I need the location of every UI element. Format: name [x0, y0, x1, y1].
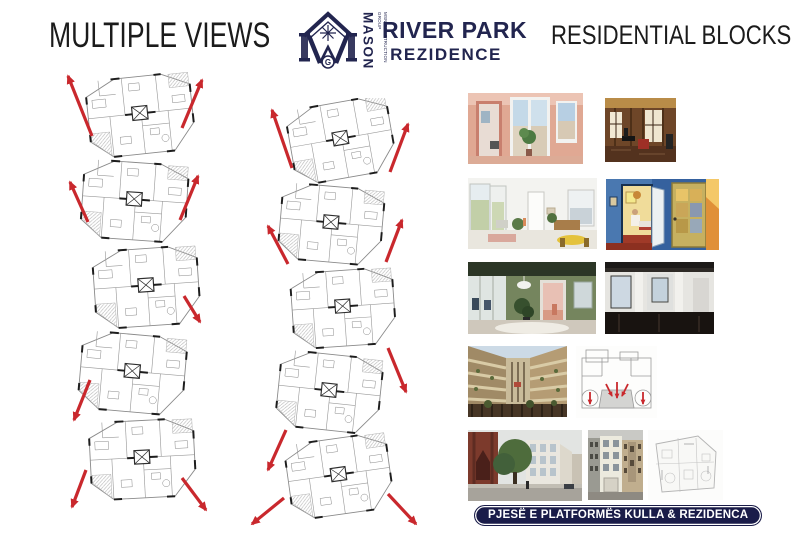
page-title-residential-blocks: RESIDENTIAL BLOCKS	[551, 20, 791, 51]
photo-render-white-living-room-balcony	[468, 178, 597, 249]
logo-monogram-g: G	[325, 58, 331, 67]
photo-empty-dark-floor-apartment	[605, 262, 714, 334]
footer-banner: PJESË E PLATFORMËS KULLA & REZIDENCA	[474, 505, 762, 526]
project-name-line2: REZIDENCE	[382, 45, 510, 65]
logo-brand-name: MASON	[361, 12, 375, 70]
project-name: RIVER PARK REZIDENCE	[382, 17, 510, 65]
floor-plan-tower-a	[46, 70, 246, 516]
sketch-entrance-plan-red-arrows	[576, 346, 657, 418]
painting-blue-room-yellow-door	[606, 179, 719, 250]
drawing-site-floor-plan	[648, 430, 723, 500]
photo-modern-infill-facade	[588, 430, 643, 500]
mason-logo-icon: G	[296, 6, 360, 72]
photo-render-terrace-doorway-salmon	[468, 93, 583, 164]
page-title-multiple-views: MULTIPLE VIEWS	[49, 16, 270, 56]
photo-brick-courtyard-towers	[468, 346, 567, 417]
photo-wood-panel-lounge	[605, 98, 676, 162]
photo-church-street-new-building	[468, 430, 582, 501]
photo-render-green-living-room	[468, 262, 596, 334]
presentation-slide: MULTIPLE VIEWS RESIDENTIAL BLOCKS G MASO…	[0, 0, 800, 533]
floor-plan-tower-b	[240, 98, 455, 530]
project-name-line1: RIVER PARK	[382, 17, 510, 44]
